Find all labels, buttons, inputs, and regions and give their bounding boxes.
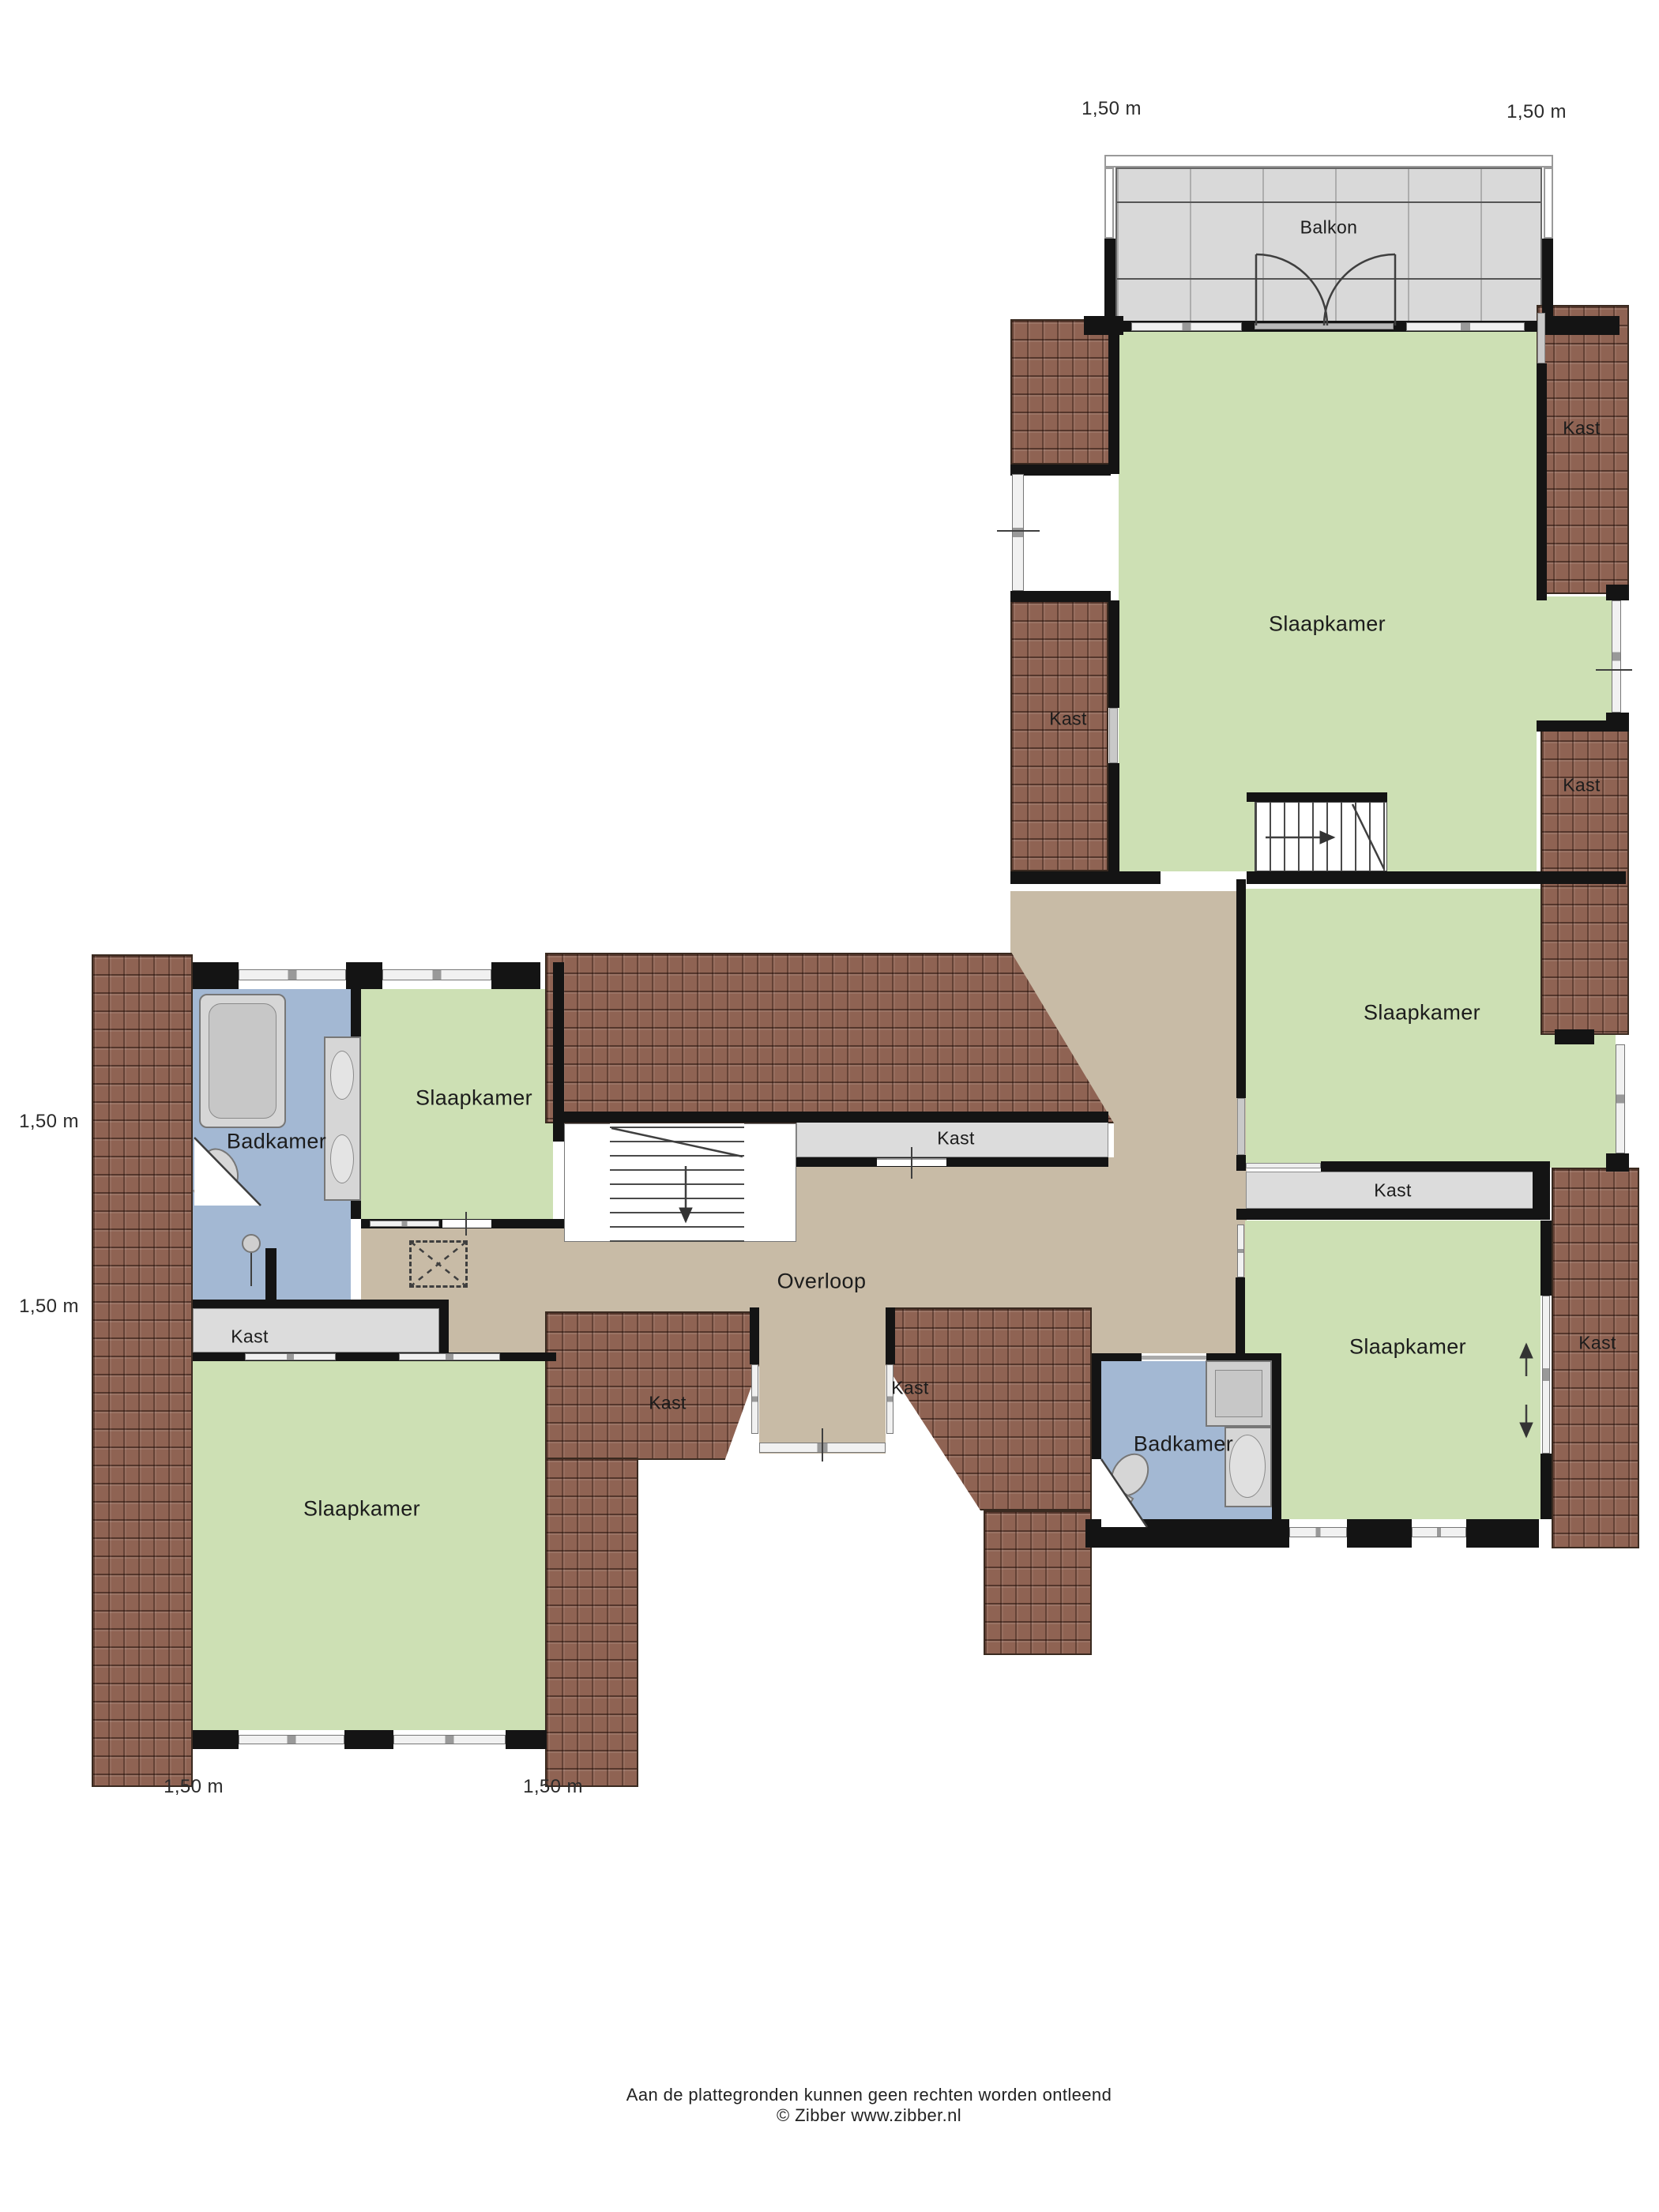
room-label-bedroom-top-right: Slaapkamer [1269, 612, 1386, 637]
french-doors [1256, 254, 1395, 325]
stair-marks-upper [1266, 804, 1384, 869]
copyright-text: © Zibber www.zibber.nl [777, 2105, 961, 2126]
dimension-label: 1,50 m [164, 1776, 224, 1798]
room-label-bathroom-left: Badkamer [227, 1130, 326, 1154]
disclaimer-text: Aan de plattegronden kunnen geen rechten… [626, 2085, 1112, 2105]
plan-annotations [0, 0, 1659, 2212]
dimension-label: 1,50 m [19, 1111, 79, 1133]
bathroom-right-door [1101, 1459, 1147, 1527]
room-label-bedroom-bottom-right: Slaapkamer [1349, 1335, 1466, 1360]
stair-marks-center [611, 1128, 743, 1221]
dimension-label: 1,50 m [1082, 98, 1142, 120]
room-label-landing: Overloop [777, 1270, 867, 1294]
floor-plan-canvas: Balkon Slaapkamer Slaapkamer Slaapkamer … [0, 0, 1659, 2212]
closet-label: Kast [1578, 1333, 1616, 1354]
room-label-bedroom-middle-right: Slaapkamer [1364, 1001, 1480, 1025]
closet-label: Kast [649, 1393, 687, 1414]
dimension-label: 1,50 m [1507, 101, 1567, 123]
closet-label: Kast [1563, 418, 1601, 439]
closet-label: Kast [937, 1128, 975, 1149]
dimension-label: 1,50 m [523, 1776, 583, 1798]
room-label-balcony: Balkon [1300, 217, 1358, 239]
room-label-bathroom-right: Badkamer [1134, 1432, 1233, 1457]
closet-label: Kast [1563, 775, 1601, 796]
void-marker-cross [411, 1242, 466, 1286]
closet-label: Kast [891, 1378, 929, 1399]
dimension-label: 1,50 m [19, 1296, 79, 1318]
room-label-bedroom-bottom-left: Slaapkamer [303, 1497, 420, 1522]
closet-label: Kast [231, 1326, 269, 1348]
closet-label: Kast [1049, 709, 1087, 730]
closet-label: Kast [1374, 1180, 1412, 1202]
fixture-and-window-ticks [251, 531, 1632, 1461]
room-label-bedroom-top-left: Slaapkamer [416, 1086, 532, 1111]
